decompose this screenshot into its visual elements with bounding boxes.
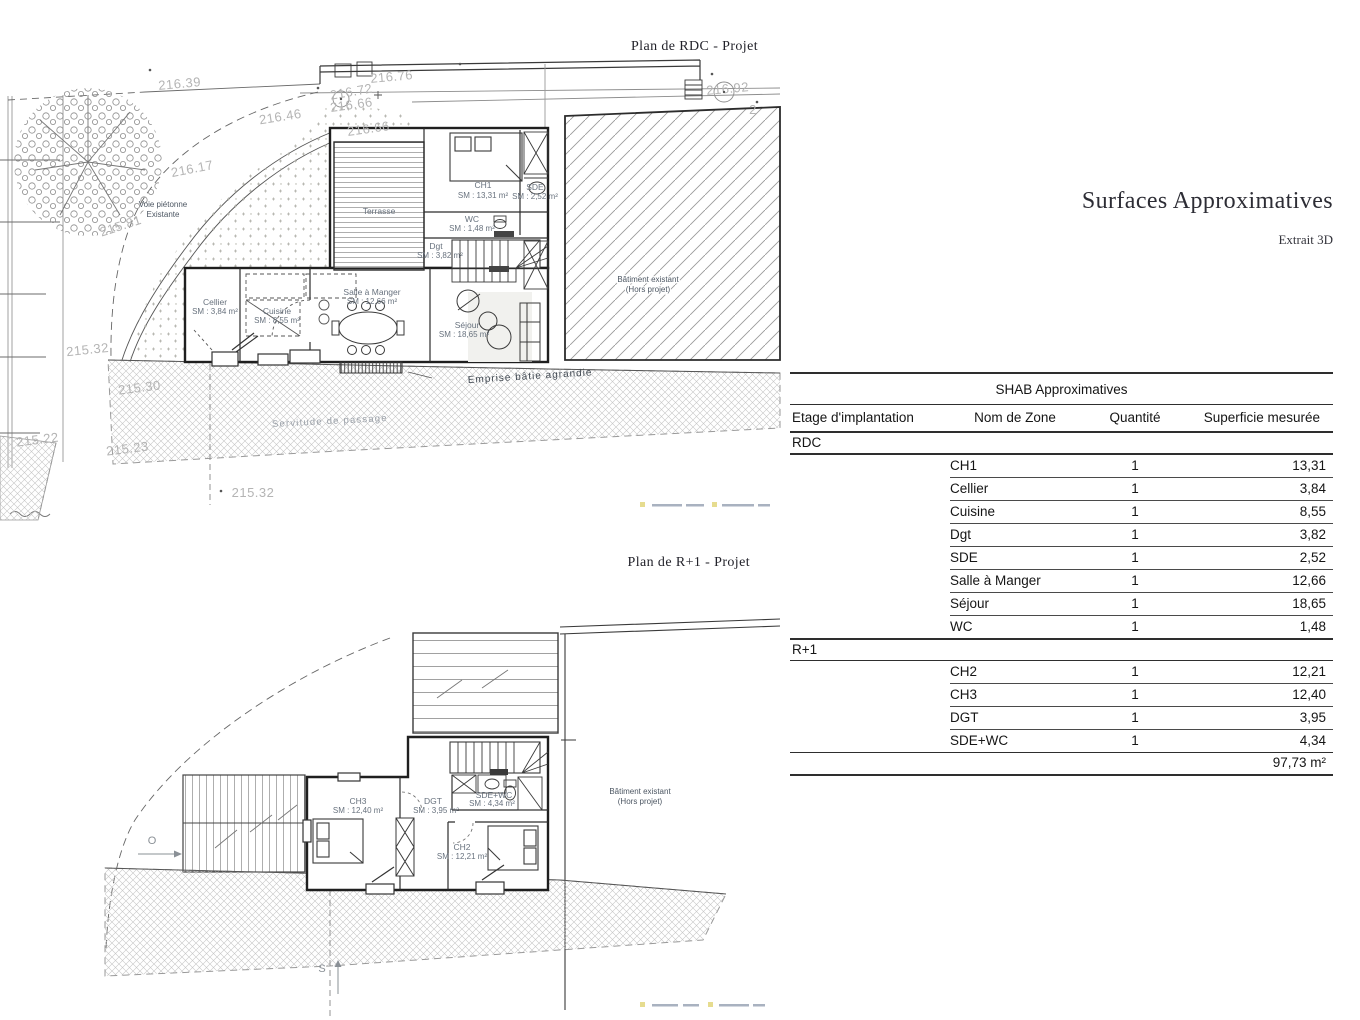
table-cell-area: 8,55	[1190, 501, 1333, 524]
cellier-area: SM : 3,84 m²	[192, 307, 238, 316]
r1-existing-building-label: Bâtiment existant	[609, 787, 671, 796]
table-cell-zone: Cuisine	[950, 501, 1080, 524]
architectural-sheet: Plan de RDC - Projet	[0, 0, 1360, 1020]
table-cell-zone: WC	[950, 616, 1080, 638]
rdc-floor-plan: Bâtiment existant (Hors projet) Servitud…	[0, 0, 788, 530]
voie-pietonne-label2: Existante	[147, 210, 180, 219]
table-cell-zone: SDE+WC	[950, 730, 1080, 752]
elevation-215-32b: 215.32	[232, 485, 275, 500]
elevation-216-76: 216.76	[370, 67, 414, 86]
cellier-label: Cellier	[203, 297, 227, 307]
table-row: Cuisine18,55	[790, 501, 1333, 524]
table-cell-qty: 1	[1080, 547, 1190, 570]
dgt-area: SM : 3,82 m²	[417, 251, 463, 260]
cuisine-label: Cuisine	[263, 306, 292, 316]
west-arrow-icon	[174, 851, 182, 858]
table-row: WC11,48	[790, 616, 1333, 638]
table-title: SHAB Approximatives	[790, 374, 1333, 405]
rdc-existing-building: Bâtiment existant (Hors projet)	[565, 107, 780, 360]
r1-dgt-area: SM : 3,95 m²	[413, 806, 459, 815]
radiator	[340, 362, 402, 373]
table-cell-zone: CH3	[950, 684, 1080, 707]
table-cell-zone: Cellier	[950, 478, 1080, 501]
table-row: CH1113,31	[790, 455, 1333, 478]
table-cell-floor	[790, 570, 950, 593]
table-cell-area: 3,82	[1190, 524, 1333, 547]
terrasse-label: Terrasse	[363, 206, 396, 216]
table-cell-area: 2,52	[1190, 547, 1333, 570]
wc-label: WC	[465, 214, 479, 224]
table-cell-floor	[790, 707, 950, 730]
r1-floor-plan: Bâtiment existant (Hors projet)	[0, 530, 788, 1020]
elevation-215-32a: 215.32	[65, 340, 109, 359]
table-cell-qty: 1	[1080, 455, 1190, 478]
r1-existing-building-label2: (Hors projet)	[618, 797, 663, 806]
table-cell-qty: 1	[1080, 570, 1190, 593]
table-cell-area: 18,65	[1190, 593, 1333, 616]
ch1-area: SM : 13,31 m²	[458, 191, 509, 200]
table-cell-floor	[790, 730, 950, 752]
table-cell-area: 3,95	[1190, 707, 1333, 730]
ch2-label: CH2	[453, 842, 470, 852]
table-cell-qty: 1	[1080, 524, 1190, 547]
table-cell-floor	[790, 501, 950, 524]
total-area-value: 97,73 m²	[1273, 755, 1326, 770]
sde-area: SM : 2,52 m²	[512, 192, 558, 201]
table-cell-floor	[790, 524, 950, 547]
header-zone: Nom de Zone	[950, 410, 1080, 425]
table-cell-area: 13,31	[1190, 455, 1333, 478]
page-subtitle: Extrait 3D	[1278, 232, 1333, 248]
table-cell-floor	[790, 455, 950, 478]
rdc-existing-building-label: Bâtiment existant	[617, 275, 679, 284]
table-cell-floor	[790, 478, 950, 501]
table-cell-floor	[790, 593, 950, 616]
sam-label: Salle à Manger	[343, 287, 400, 297]
table-row: Cellier13,84	[790, 478, 1333, 501]
table-row: Dgt13,82	[790, 524, 1333, 547]
table-body: RDCCH1113,31Cellier13,84Cuisine18,55Dgt1…	[790, 433, 1333, 752]
header-quantite: Quantité	[1080, 410, 1190, 425]
orientation-west-label: O	[148, 835, 157, 847]
table-cell-zone: Séjour	[950, 593, 1080, 616]
table-total: 97,73 m²	[790, 752, 1333, 774]
table-cell-qty: 1	[1080, 730, 1190, 752]
fine-print-legend	[640, 1002, 765, 1007]
sdewc-area: SM : 4,34 m²	[469, 799, 515, 808]
table-cell-area: 3,84	[1190, 478, 1333, 501]
header-etage: Etage d'implantation	[790, 410, 950, 425]
table-cell-floor	[790, 616, 950, 638]
ch3-label: CH3	[349, 796, 366, 806]
table-cell-area: 12,21	[1190, 661, 1333, 684]
rdc-existing-building-label2: (Hors projet)	[626, 285, 671, 294]
table-cell-qty: 1	[1080, 684, 1190, 707]
orientation-south-label: S	[318, 963, 325, 975]
cuisine-area: SM : 8,55 m²	[254, 316, 300, 325]
table-row: SDE12,52	[790, 547, 1333, 570]
table-cell-zone: Salle à Manger	[950, 570, 1080, 593]
table-cell-qty: 1	[1080, 661, 1190, 684]
table-cell-zone: CH1	[950, 455, 1080, 478]
wc-area: SM : 1,48 m²	[449, 224, 495, 233]
table-cell-qty: 1	[1080, 707, 1190, 730]
table-row: CH3112,40	[790, 684, 1333, 707]
elevation-2: 2	[749, 102, 757, 117]
table-header-row: Etage d'implantation Nom de Zone Quantit…	[790, 405, 1333, 433]
table-row: Séjour118,65	[790, 593, 1333, 616]
r1-building	[303, 737, 548, 894]
table-floor-row: R+1	[790, 638, 1333, 661]
elevation-216-46: 216.46	[258, 106, 303, 128]
table-cell-zone: CH2	[950, 661, 1080, 684]
voie-pietonne-label: Voie piétonne	[139, 200, 188, 209]
r1-dgt-label: DGT	[424, 796, 442, 806]
dgt-label: Dgt	[429, 241, 443, 251]
table-cell-floor	[790, 547, 950, 570]
table-cell-area: 12,66	[1190, 570, 1333, 593]
page-title: Surfaces Approximatives	[1082, 188, 1333, 215]
table-row: DGT13,95	[790, 707, 1333, 730]
ch3-area: SM : 12,40 m²	[333, 806, 384, 815]
table-cell-floor	[790, 661, 950, 684]
table-cell-area: 1,48	[1190, 616, 1333, 638]
sde-label: SDE	[526, 182, 544, 192]
fine-print-legend	[640, 502, 770, 507]
ch1-label: CH1	[474, 180, 491, 190]
table-cell-qty: 1	[1080, 478, 1190, 501]
r1-existing-building: Bâtiment existant (Hors projet)	[609, 787, 671, 806]
table-cell-qty: 1	[1080, 616, 1190, 638]
table-cell-qty: 1	[1080, 593, 1190, 616]
sejour-label: Séjour	[455, 320, 480, 330]
sam-area: SM : 12,66 m²	[347, 297, 398, 306]
table-cell-area: 4,34	[1190, 730, 1333, 752]
table-cell-area: 12,40	[1190, 684, 1333, 707]
sejour-area: SM : 18,65 m²	[439, 330, 490, 339]
table-cell-zone: SDE	[950, 547, 1080, 570]
table-floor-row: RDC	[790, 433, 1333, 455]
table-row: Salle à Manger112,66	[790, 570, 1333, 593]
table-cell-floor	[790, 684, 950, 707]
shab-table: SHAB Approximatives Etage d'implantation…	[790, 372, 1333, 776]
table-cell-qty: 1	[1080, 501, 1190, 524]
header-superficie: Superficie mesurée	[1190, 410, 1333, 425]
table-row: CH2112,21	[790, 661, 1333, 684]
ch2-area: SM : 12,21 m²	[437, 852, 488, 861]
table-cell-zone: DGT	[950, 707, 1080, 730]
table-row: SDE+WC14,34	[790, 730, 1333, 752]
table-cell-zone: Dgt	[950, 524, 1080, 547]
